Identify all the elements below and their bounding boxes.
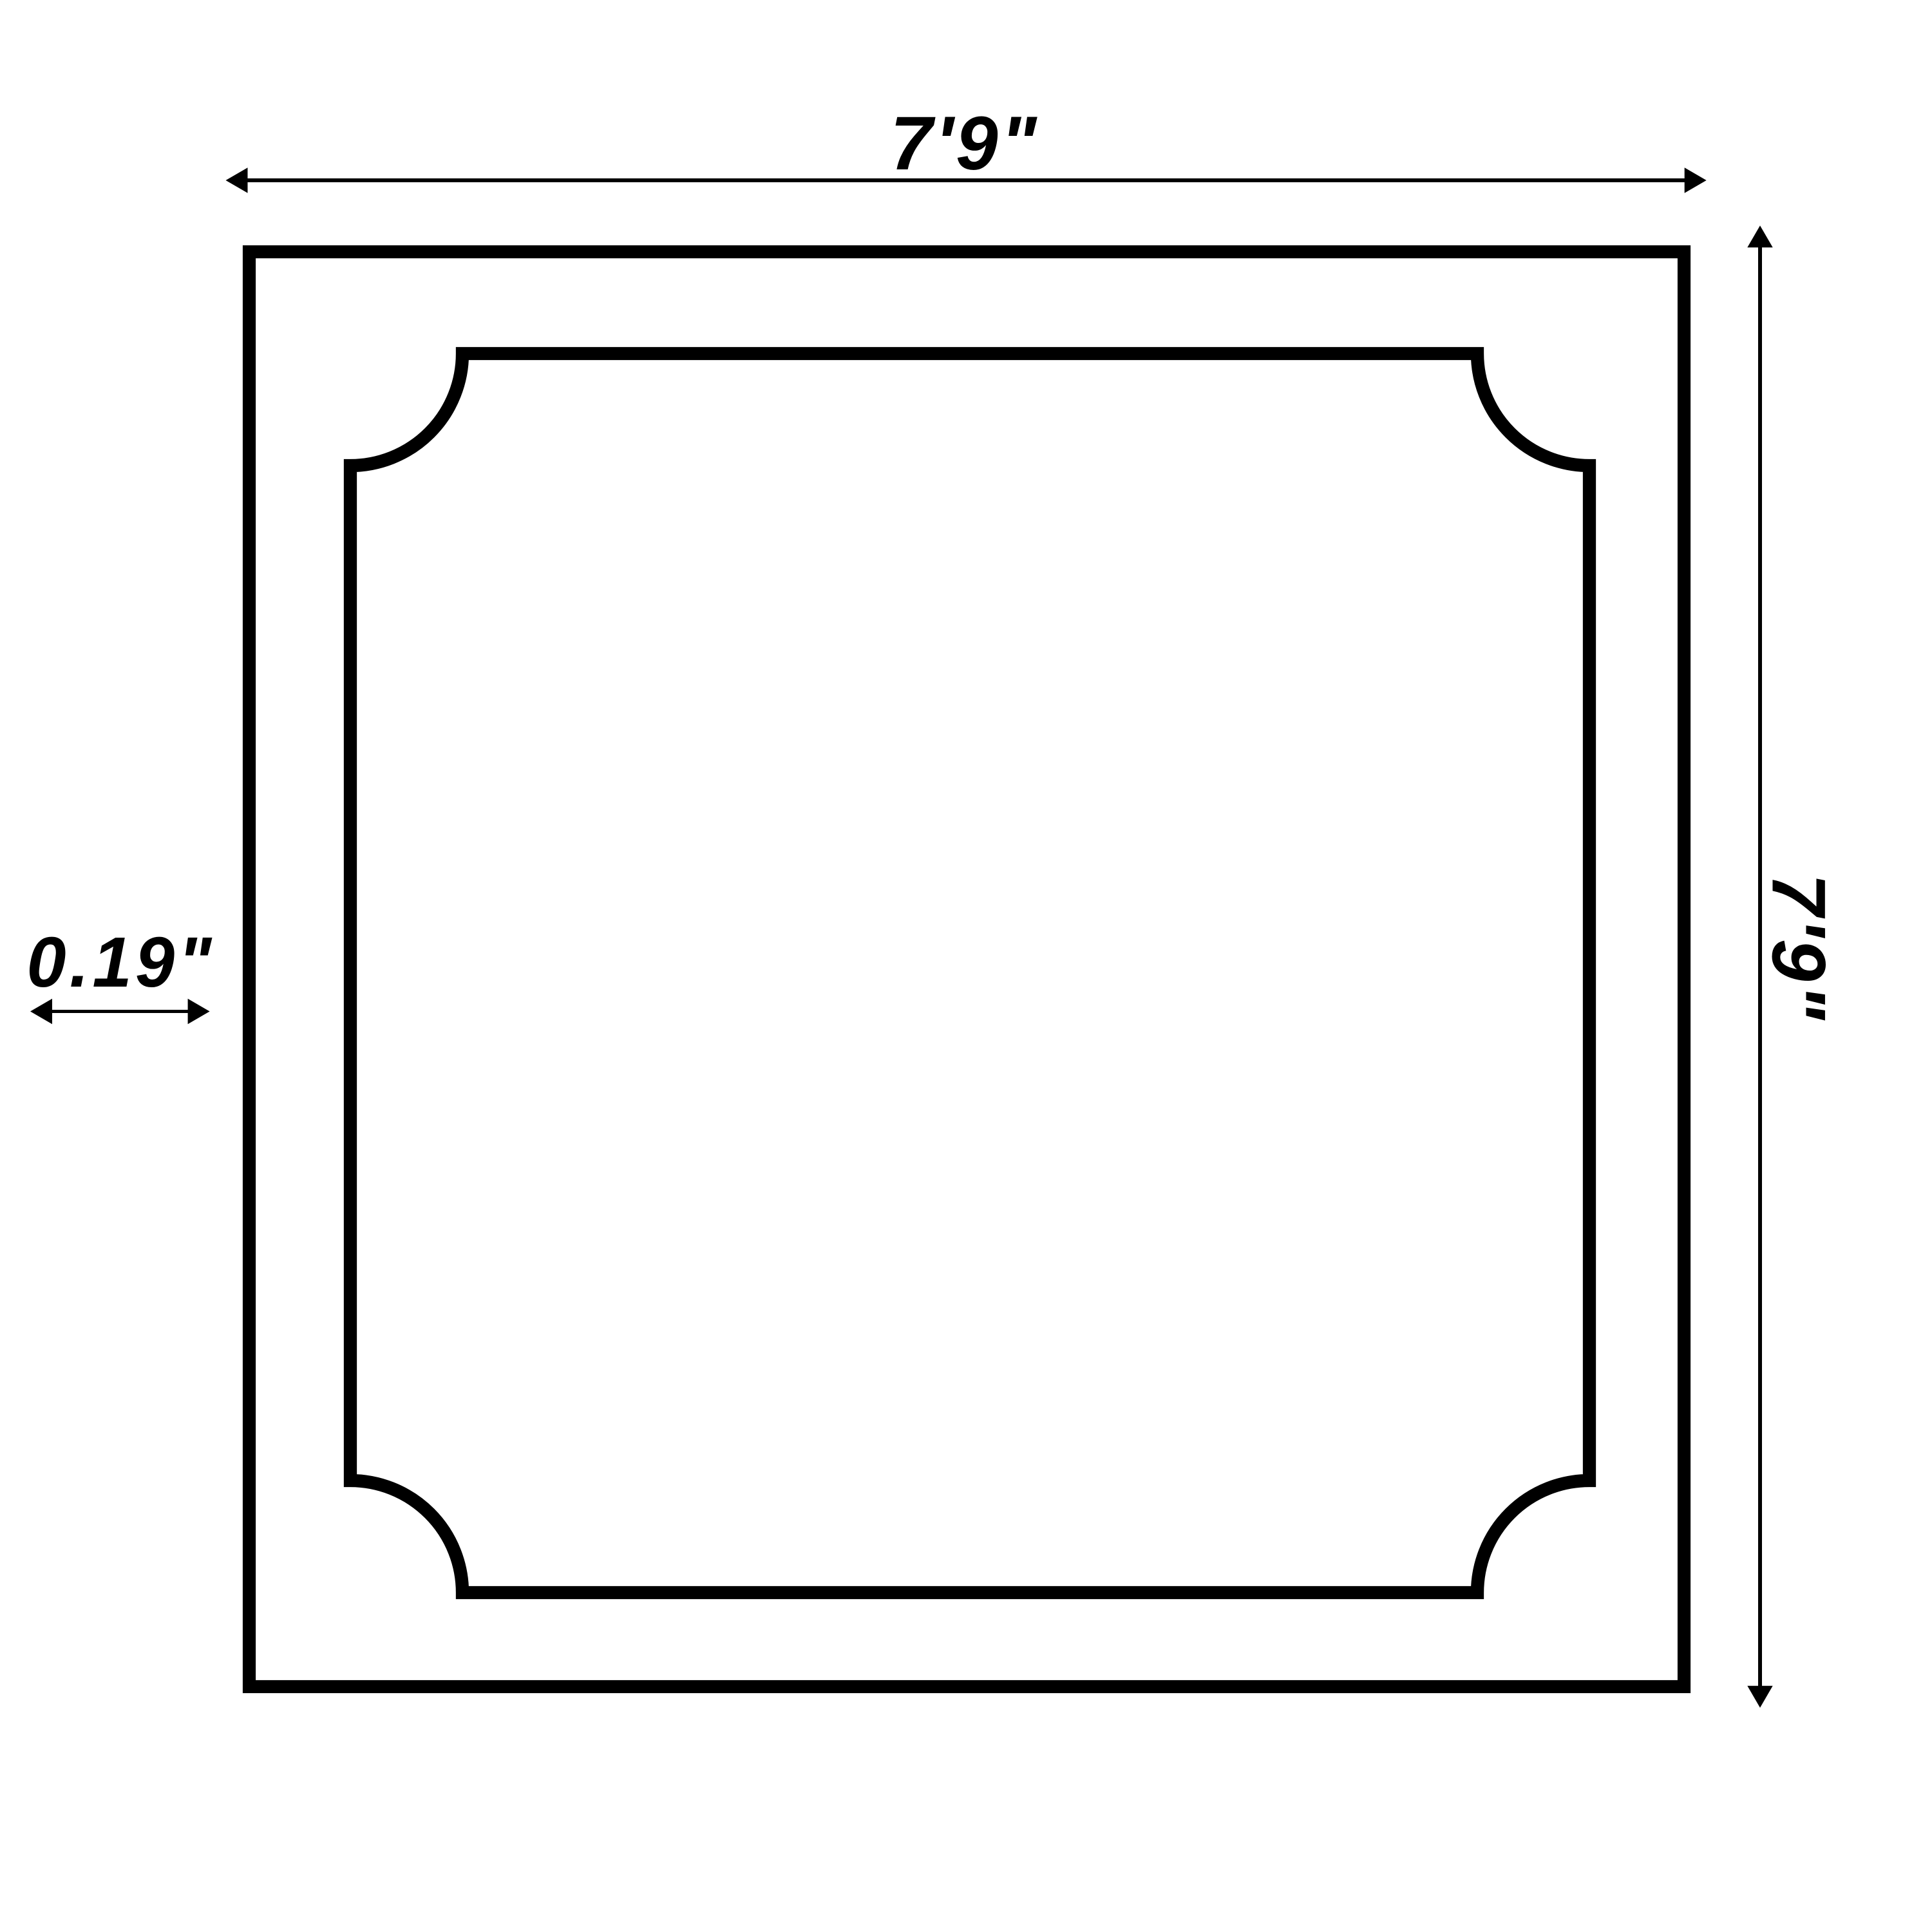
svg-text:7'9": 7'9" xyxy=(1756,873,1841,1022)
svg-text:0.19": 0.19" xyxy=(26,923,214,1002)
svg-text:7'9": 7'9" xyxy=(890,101,1039,186)
